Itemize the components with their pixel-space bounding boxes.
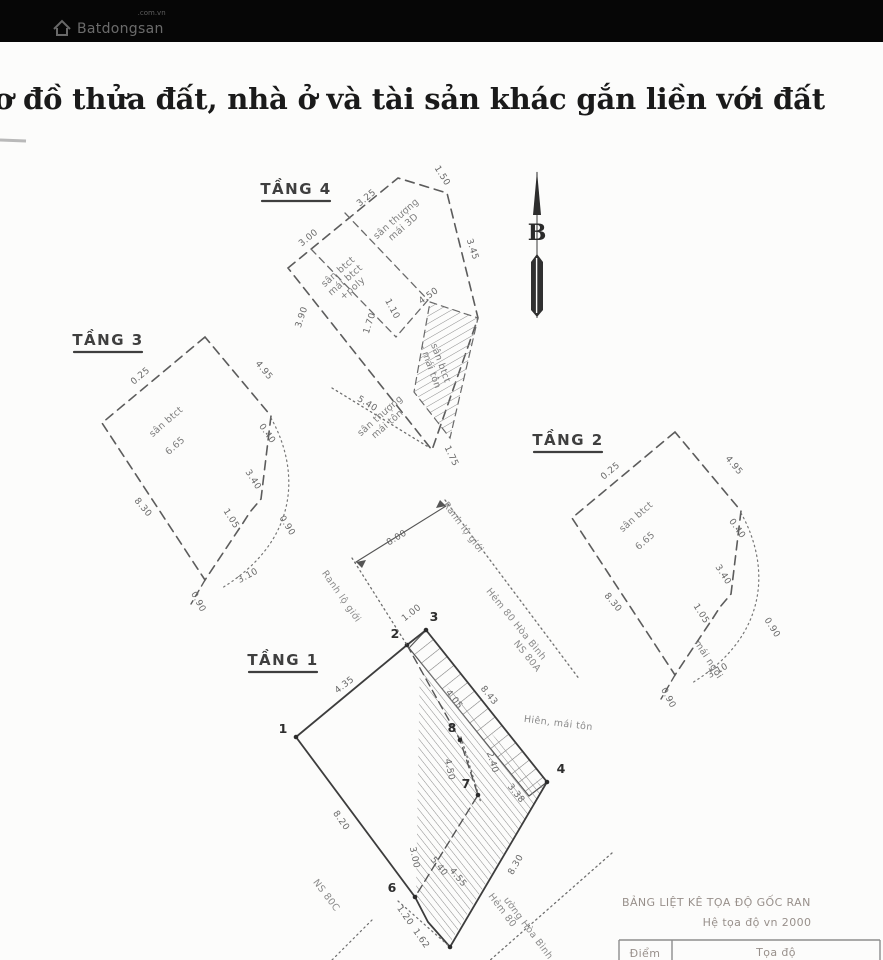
coordinate-table-title: BẢNG LIỆT KÊ TỌA ĐỘ GỐC RAN [622, 895, 811, 909]
floor1-dim: 4.35 [333, 675, 356, 696]
north-label: B [528, 220, 547, 246]
floor3-dim: 8.30 [132, 496, 154, 519]
floor3-label: TẦNG 3 [72, 328, 143, 349]
scanned-document-page: .com.vn Batdongsan ơ đồ thửa đất, nhà ở … [0, 0, 883, 960]
floor4-dim: 1.75 [442, 444, 460, 468]
floor2-dim: 1.05 [691, 602, 711, 626]
coordinate-table-subtitle: Hệ tọa độ vn 2000 [703, 916, 812, 929]
floor1-point: 2 [391, 626, 400, 641]
floor2-dim: 3.40 [713, 563, 733, 587]
floor1-point: 1 [279, 721, 288, 736]
street-width-value: 8.00 [385, 528, 409, 548]
floor3-outline [102, 337, 271, 580]
road-boundary-label-b: Ranh lộ giới [440, 500, 485, 555]
floor4-plan: TẦNG 4 3.00 3.25 1.50 3.45 3.90 1.70 1.1… [260, 164, 480, 468]
floor2-dim: 0.90 [762, 616, 782, 640]
floor3-dim: 0.90 [277, 514, 297, 538]
floor2-plan: TẦNG 2 sân btct 6.65 mái ngói 0.25 4.95 … [532, 428, 781, 710]
floor4-dim: 1.70 [362, 312, 378, 336]
floor1-dim: 8.20 [330, 809, 351, 832]
floor4-dim: 1.50 [432, 164, 452, 188]
floor4-dim: 3.45 [464, 238, 480, 262]
floor2-dim: 0.40 [726, 517, 747, 540]
floor3-dim: 3.40 [243, 468, 263, 492]
floor3-dim: 4.95 [253, 359, 275, 382]
floor1-dim: 1.00 [400, 603, 423, 624]
floor1-plan: TẦNG 1 1 2 3 4 8 7 6 [247, 500, 612, 960]
floor1-point: 6 [388, 880, 397, 895]
floor1-point: 7 [462, 776, 471, 791]
floor4-dim: 4.50 [417, 286, 440, 307]
floor1-point: 3 [430, 609, 439, 624]
floor3-area: 6.65 [163, 435, 187, 458]
floor3-dim: 0.40 [256, 422, 277, 445]
north-arrow-head-icon [533, 171, 541, 215]
cadastral-drawing: B TẦNG 4 3.00 3.25 1.50 3.45 3.90 1.70 1… [0, 0, 883, 960]
document-title: ơ đồ thửa đất, nhà ở và tài sản khác gắn… [0, 82, 883, 116]
floor4-label: TẦNG 4 [260, 177, 331, 198]
floor2-dim: 0.25 [599, 461, 622, 483]
floor4-room-top: sân thượng mái 3D [371, 196, 428, 250]
floor4-dim: 3.90 [294, 306, 310, 330]
floor3-dotted-arc [222, 418, 289, 588]
floor2-area: 6.65 [633, 530, 657, 553]
floor4-dim: 5.40 [355, 394, 379, 414]
coordinate-table: BẢNG LIỆT KÊ TỌA ĐỘ GỐC RAN Hệ tọa độ vn… [619, 895, 880, 960]
house-number-80c: NS 80C [310, 877, 341, 913]
scan-artifact-line [0, 140, 26, 141]
floor4-room-left: sân btct mái btct +poly [319, 254, 372, 306]
coordinate-table-col-point: Điểm [630, 947, 661, 960]
floor4-dim: 3.00 [297, 228, 320, 249]
floor4-dim: 1.10 [382, 297, 401, 321]
floor2-outline [572, 432, 741, 675]
floor1-point: 4 [557, 761, 566, 776]
floor3-plan: TẦNG 3 sân btct 6.65 0.25 4.95 0.40 3.40… [72, 328, 296, 614]
floor1-label: TẦNG 1 [247, 648, 318, 669]
floor3-dim: 0.25 [129, 366, 152, 388]
road-boundary-label-a: Ranh lộ giới [319, 569, 363, 625]
floor4-dim: 3.25 [355, 188, 378, 209]
floor3-dim: 1.05 [221, 507, 241, 531]
floor3-dim: 3.10 [236, 567, 260, 586]
floor1-dim: 8.30 [507, 853, 526, 877]
floor1-dim: 1.20 [394, 904, 415, 927]
north-arrow: B [528, 171, 547, 318]
street-width-dimension: 8.00 [356, 500, 446, 568]
floor1-dim: 1.62 [410, 927, 431, 950]
porch-label: Hiên, mái tôn [523, 714, 593, 733]
floor2-dim: 4.95 [723, 454, 745, 477]
floor3-dim: 0.90 [188, 590, 207, 614]
floor1-point: 8 [448, 720, 457, 735]
coordinate-table-col-coord: Tọa độ [755, 946, 796, 959]
floor2-dim: 8.30 [602, 591, 624, 614]
floor2-label: TẦNG 2 [532, 428, 603, 449]
